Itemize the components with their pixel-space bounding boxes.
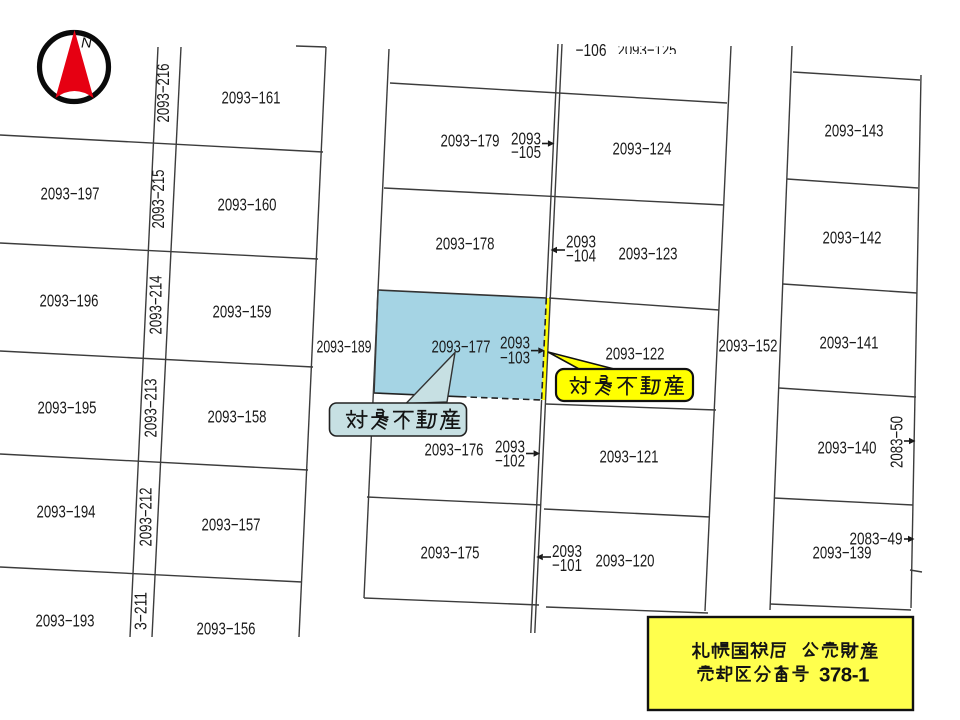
svg-text:2093−143: 2093−143 [825, 121, 884, 141]
svg-text:2093−193: 2093−193 [36, 611, 95, 631]
svg-text:2093−212: 2093−212 [136, 488, 156, 547]
svg-text:2083−50: 2083−50 [887, 416, 907, 468]
svg-text:−103: −103 [500, 348, 530, 368]
svg-text:−101: −101 [552, 555, 582, 575]
svg-text:2093−120: 2093−120 [596, 551, 655, 571]
svg-text:2093−195: 2093−195 [38, 398, 97, 418]
svg-text:2093−177: 2093−177 [432, 337, 491, 357]
svg-text:−102: −102 [495, 451, 525, 471]
svg-text:2083−49: 2083−49 [850, 529, 903, 549]
svg-text:2093−179: 2093−179 [441, 131, 500, 151]
svg-text:N: N [81, 35, 92, 52]
svg-text:2093−189: 2093−189 [317, 337, 372, 357]
svg-text:−104: −104 [566, 246, 596, 266]
svg-text:2093−215: 2093−215 [148, 169, 168, 228]
svg-text:2093−161: 2093−161 [222, 88, 281, 108]
svg-text:2093−159: 2093−159 [213, 302, 272, 322]
svg-text:2093−152: 2093−152 [719, 336, 778, 356]
svg-text:2093−121: 2093−121 [600, 447, 659, 467]
svg-text:2093−142: 2093−142 [823, 228, 882, 248]
svg-text:2093−194: 2093−194 [37, 502, 96, 522]
svg-text:2093−160: 2093−160 [218, 195, 277, 215]
svg-text:2093−157: 2093−157 [202, 515, 261, 535]
svg-text:2093−140: 2093−140 [818, 438, 877, 458]
svg-text:2093−141: 2093−141 [820, 333, 879, 353]
svg-text:2093−124: 2093−124 [613, 139, 672, 159]
svg-text:−105: −105 [511, 142, 541, 162]
svg-text:2093−197: 2093−197 [41, 184, 100, 204]
svg-text:2093−156: 2093−156 [197, 619, 256, 639]
svg-text:2093−214: 2093−214 [146, 275, 166, 334]
svg-text:3−211: 3−211 [131, 592, 151, 630]
svg-text:2093−175: 2093−175 [421, 543, 480, 563]
svg-text:2093−178: 2093−178 [436, 234, 495, 254]
svg-text:2093−216: 2093−216 [153, 63, 173, 122]
svg-text:2093−158: 2093−158 [208, 407, 267, 427]
svg-text:2093−123: 2093−123 [619, 244, 678, 264]
svg-text:378-1: 378-1 [819, 664, 869, 687]
svg-text:2093−213: 2093−213 [141, 378, 161, 437]
svg-text:2093−122: 2093−122 [606, 344, 665, 364]
svg-text:2093−196: 2093−196 [40, 291, 99, 311]
svg-text:−106: −106 [576, 40, 607, 60]
svg-text:2093−176: 2093−176 [425, 440, 484, 460]
